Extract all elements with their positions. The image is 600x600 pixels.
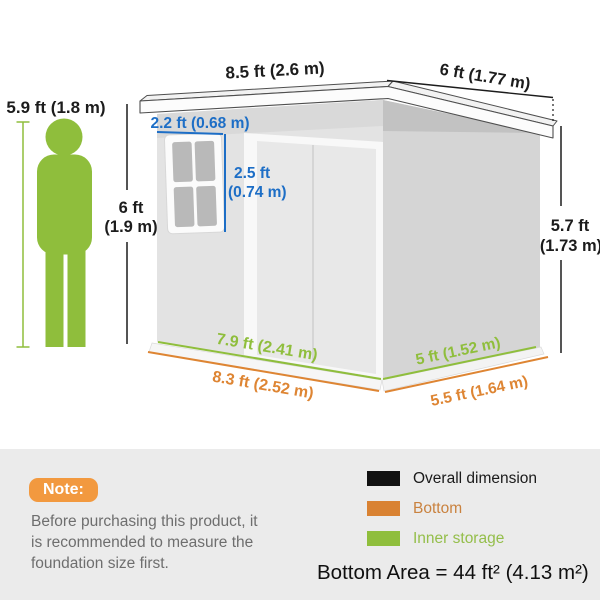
person-torso (37, 155, 92, 255)
overall-dimension-swatch (367, 471, 400, 486)
legend-row-bottom: Bottom (367, 500, 537, 517)
note-badge-label: Note: (43, 481, 84, 498)
person-figure (17, 119, 93, 348)
person-right-leg (68, 246, 86, 347)
bottom-label: Bottom (413, 500, 462, 518)
front-height-label-line2: (1.9 m) (104, 218, 157, 236)
shed-side-wall (383, 100, 540, 378)
inner-storage-swatch (367, 531, 400, 546)
inner-storage-label: Inner storage (413, 530, 504, 548)
bottom-area-text: Bottom Area = 44 ft² (4.13 m²) (317, 561, 589, 585)
window-width-label: 2.2 ft (0.68 m) (150, 115, 249, 132)
note-text: Before purchasing this product, it is re… (31, 511, 258, 574)
person-height-label: 5.9 ft (1.8 m) (6, 98, 105, 117)
window-pane (174, 187, 195, 228)
info-panel: Note: Before purchasing this product, it… (0, 449, 600, 600)
diagram-canvas: 5.9 ft (1.8 m) (0, 0, 600, 449)
overall-dimension-label: Overall dimension (413, 470, 537, 488)
window-pane (195, 141, 216, 182)
front-height-label-line1: 6 ft (119, 199, 144, 217)
roof-side-depth-label: 6 ft (1.77 m) (438, 61, 531, 94)
note-line: is recommended to measure the (31, 532, 258, 553)
note-line: foundation size first. (31, 553, 258, 574)
person-head (46, 119, 83, 156)
note-line: Before purchasing this product, it (31, 511, 258, 532)
legend-row-inner-storage: Inner storage (367, 530, 537, 547)
rear-height-label-line1: 5.7 ft (551, 217, 590, 235)
shed-window (164, 133, 224, 234)
window-pane (196, 186, 217, 227)
legend-row-overall: Overall dimension (367, 470, 537, 487)
rear-height-label-line2: (1.73 m) (540, 237, 600, 255)
window-height-label-line1: 2.5 ft (234, 165, 270, 182)
bottom-swatch (367, 501, 400, 516)
window-pane (172, 142, 193, 183)
roof-front-width-label: 8.5 ft (2.6 m) (225, 58, 325, 82)
window-height-label-line2: (0.74 m) (228, 184, 287, 201)
legend: Overall dimension Bottom Inner storage (367, 470, 537, 560)
person-left-leg (46, 246, 64, 347)
note-badge: Note: (29, 478, 98, 502)
shed-dimension-diagram: 5.9 ft (1.8 m) (0, 0, 600, 600)
shed-door-panels (257, 141, 376, 374)
